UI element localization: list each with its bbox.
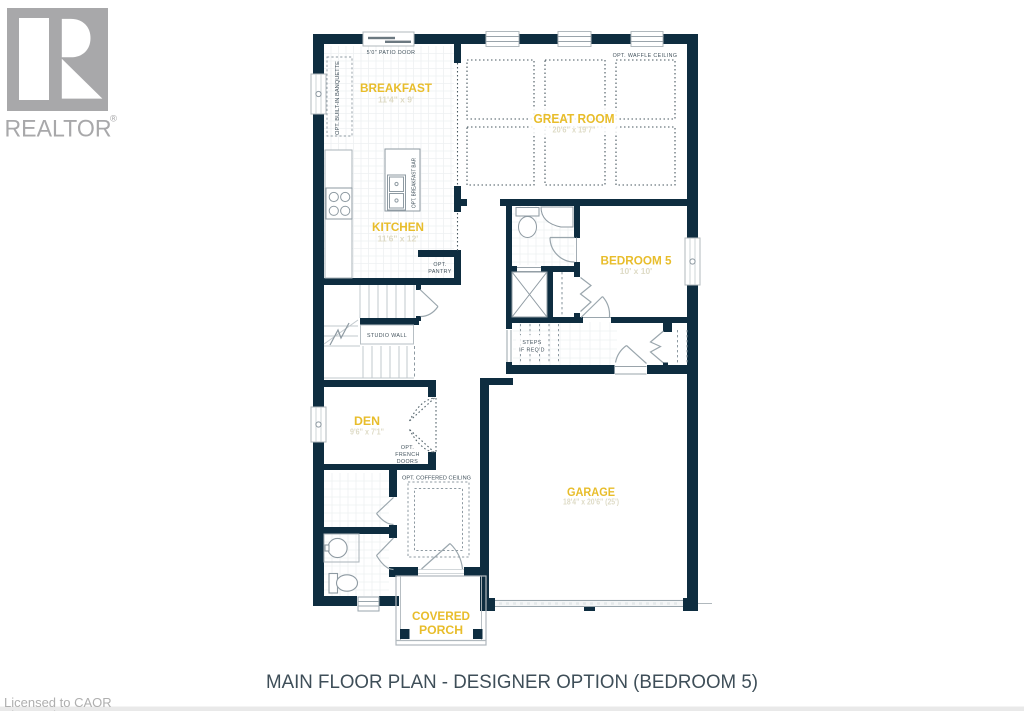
svg-text:REALTOR: REALTOR bbox=[5, 116, 112, 143]
svg-text:OPT. WAFFLE CEILING: OPT. WAFFLE CEILING bbox=[613, 53, 678, 59]
svg-text:18'4" x 20'6" (25'): 18'4" x 20'6" (25') bbox=[563, 497, 619, 507]
svg-text:5'0" PATIO DOOR: 5'0" PATIO DOOR bbox=[367, 50, 416, 56]
svg-text:11'6" x 12': 11'6" x 12' bbox=[378, 234, 419, 244]
svg-text:OPT.: OPT. bbox=[401, 445, 414, 451]
svg-text:9'6" x 7'1": 9'6" x 7'1" bbox=[350, 427, 384, 437]
svg-text:OPT. BUILT-IN BANQUETTE: OPT. BUILT-IN BANQUETTE bbox=[335, 61, 341, 135]
svg-text:10' x 10': 10' x 10' bbox=[620, 266, 652, 276]
svg-text:COVERED: COVERED bbox=[412, 609, 470, 623]
svg-text:KITCHEN: KITCHEN bbox=[372, 220, 424, 234]
svg-text:PANTRY: PANTRY bbox=[428, 269, 451, 275]
svg-text:OPT. BREAKFAST BAR: OPT. BREAKFAST BAR bbox=[412, 158, 418, 208]
svg-text:MAIN FLOOR PLAN - DESIGNER OPT: MAIN FLOOR PLAN - DESIGNER OPTION (BEDRO… bbox=[266, 672, 758, 693]
svg-text:IF REQ'D: IF REQ'D bbox=[519, 348, 545, 354]
svg-text:11'4" x 9': 11'4" x 9' bbox=[378, 95, 414, 105]
svg-text:PORCH: PORCH bbox=[419, 623, 463, 637]
svg-text:®: ® bbox=[110, 114, 117, 125]
svg-text:STEPS: STEPS bbox=[522, 340, 541, 346]
svg-text:OPT.: OPT. bbox=[433, 262, 446, 268]
svg-text:STUDIO WALL: STUDIO WALL bbox=[367, 333, 407, 339]
svg-text:DOORS: DOORS bbox=[397, 459, 418, 465]
svg-text:FRENCH: FRENCH bbox=[395, 452, 419, 458]
svg-text:BREAKFAST: BREAKFAST bbox=[360, 81, 433, 95]
svg-text:20'6" x 19'7": 20'6" x 19'7" bbox=[553, 125, 596, 135]
svg-text:OPT. COFFERED CEILING: OPT. COFFERED CEILING bbox=[402, 476, 471, 482]
